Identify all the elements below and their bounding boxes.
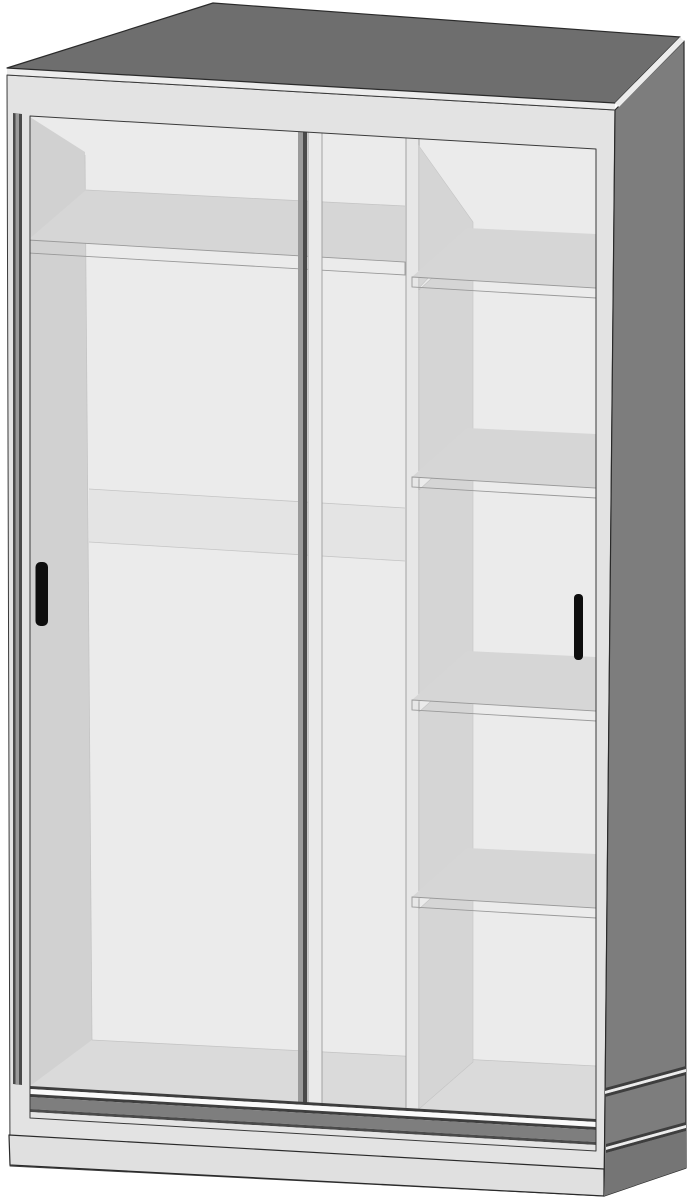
right-door-handle (574, 594, 583, 660)
wardrobe-svg: Technical 3D product illustration of a t… (0, 0, 688, 1200)
left-sliding-door-glass (26, 114, 304, 1103)
right-door-left-stile (308, 132, 322, 1105)
left-door-right-edge-line (303, 130, 307, 1103)
left-door-right-edge-highlight (298, 130, 303, 1102)
left-door-left-edge-highlight (16, 113, 20, 1085)
wardrobe-illustration: Technical 3D product illustration of a t… (0, 0, 688, 1200)
right-sliding-door-glass (308, 132, 596, 1121)
right-side-panel (604, 41, 686, 1196)
left-door-handle (36, 562, 49, 626)
